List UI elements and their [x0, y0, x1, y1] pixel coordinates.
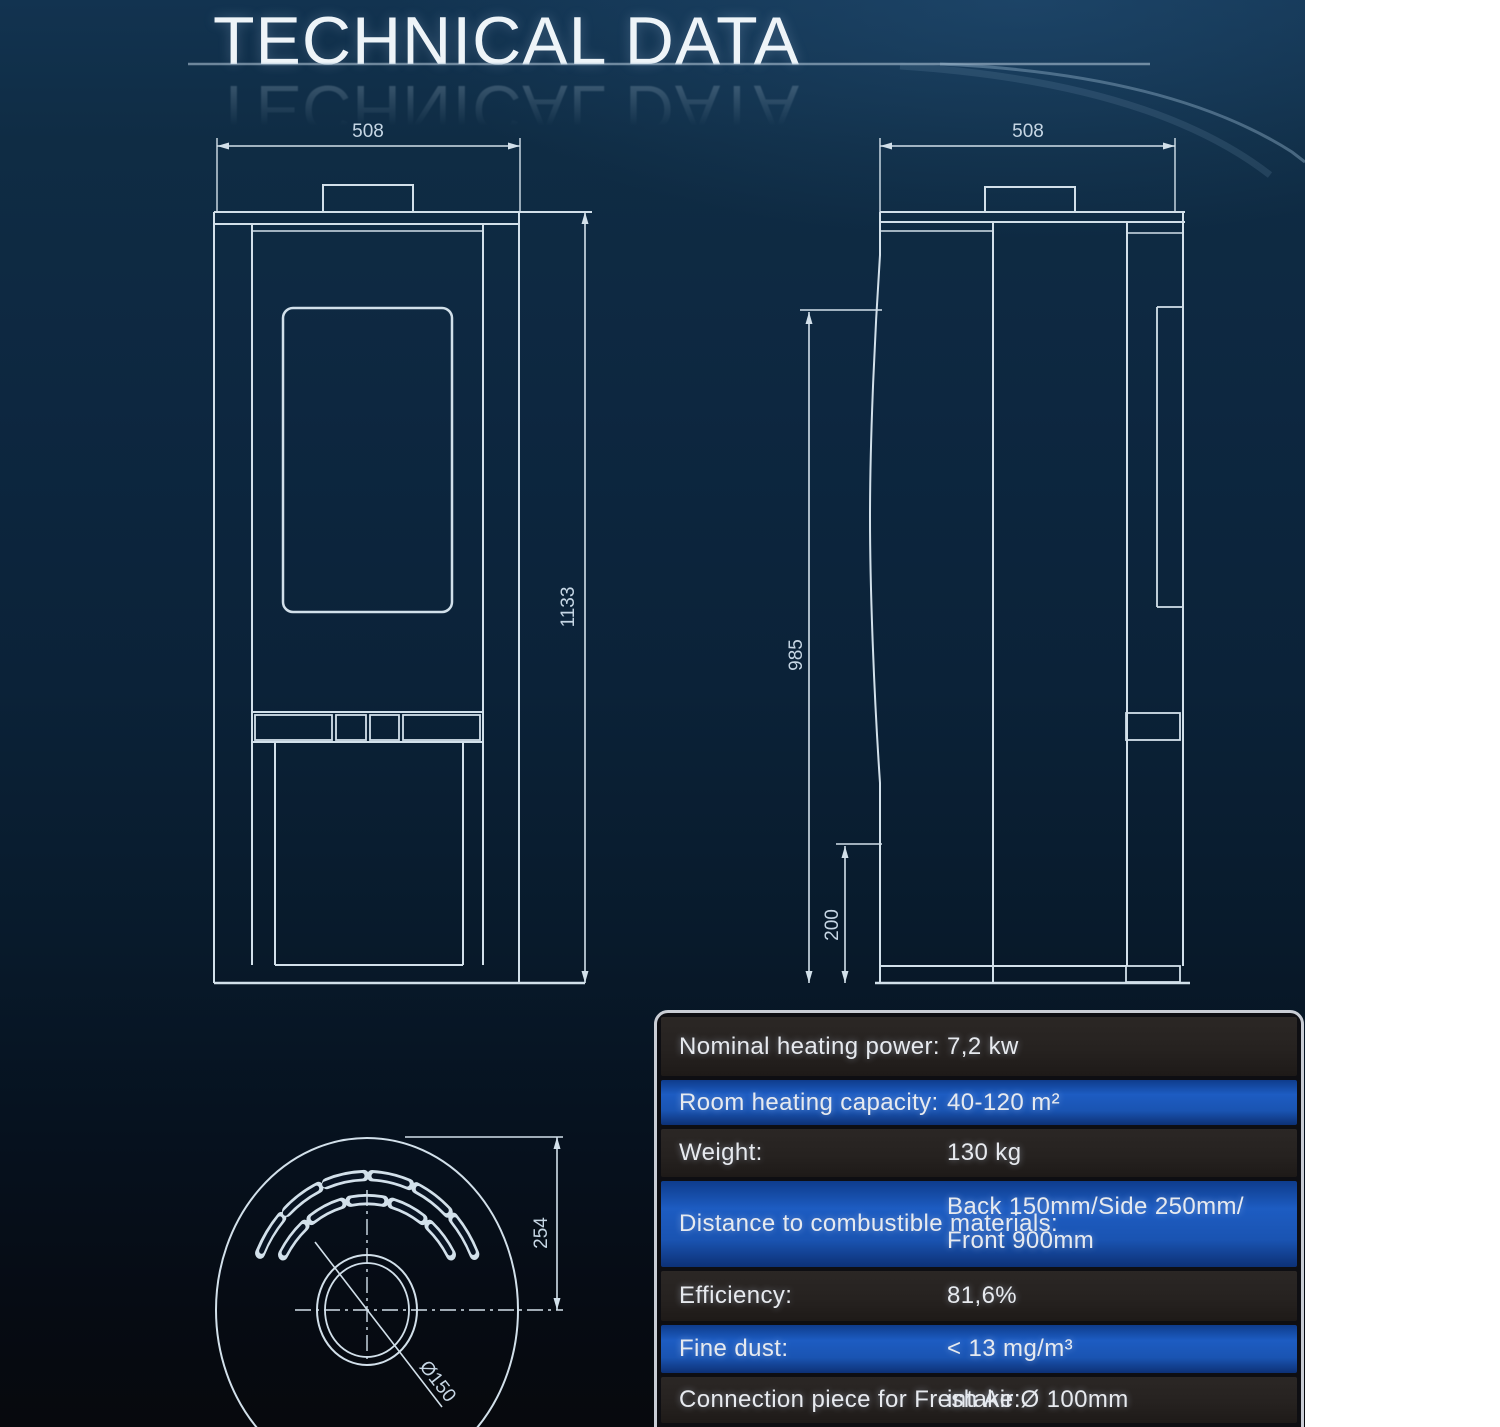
dimension-label: 1133 — [558, 587, 579, 628]
spec-value: 81,6% — [947, 1282, 1017, 1310]
table-row: Room heating capacity: 40-120 m² — [661, 1080, 1297, 1125]
side-view-drawing: 508 985 200 — [790, 115, 1210, 1045]
spec-value-line: Back 150mm/Side 250mm/ — [947, 1190, 1244, 1224]
spec-label: Efficiency: — [679, 1282, 792, 1310]
spec-value: 40-120 m² — [947, 1089, 1060, 1117]
table-row: Weight: 130 kg — [661, 1129, 1297, 1177]
table-row: Nominal heating power: 7,2 kw — [661, 1017, 1297, 1076]
table-row: Fine dust: < 13 mg/m³ — [661, 1325, 1297, 1373]
dimension-label: 508 — [1012, 121, 1044, 142]
table-row: Distance to combustible materials: Back … — [661, 1181, 1297, 1267]
spec-value: 130 kg — [947, 1139, 1021, 1167]
dimension-label: 508 — [352, 121, 384, 142]
spec-value: intake Ø 100mm — [947, 1386, 1129, 1414]
spec-label: Weight: — [679, 1139, 763, 1167]
spec-value: Back 150mm/Side 250mm/ Front 900mm — [947, 1190, 1244, 1258]
spec-value: 7,2 kw — [947, 1033, 1019, 1061]
dimension-label: 254 — [531, 1217, 552, 1249]
spec-table: Nominal heating power: 7,2 kw Room heati… — [654, 1010, 1304, 1427]
table-row: Connection piece for Fresh Air: intake Ø… — [661, 1377, 1297, 1423]
spec-label: Room heating capacity: — [679, 1089, 939, 1117]
dimension-label: 985 — [786, 639, 807, 671]
spec-value: < 13 mg/m³ — [947, 1335, 1073, 1363]
front-view-drawing: 508 1133 — [195, 115, 605, 1045]
top-view-drawing: Ø150 254 — [195, 1085, 605, 1427]
spec-value-line: Front 900mm — [947, 1224, 1244, 1258]
table-row: Efficiency: 81,6% — [661, 1271, 1297, 1321]
page-background: TECHNICAL DATA TECHNICAL DATA 508 — [0, 0, 1305, 1427]
spec-label: Fine dust: — [679, 1335, 788, 1363]
spec-label: Nominal heating power: — [679, 1033, 940, 1061]
dimension-label: 200 — [822, 909, 843, 941]
